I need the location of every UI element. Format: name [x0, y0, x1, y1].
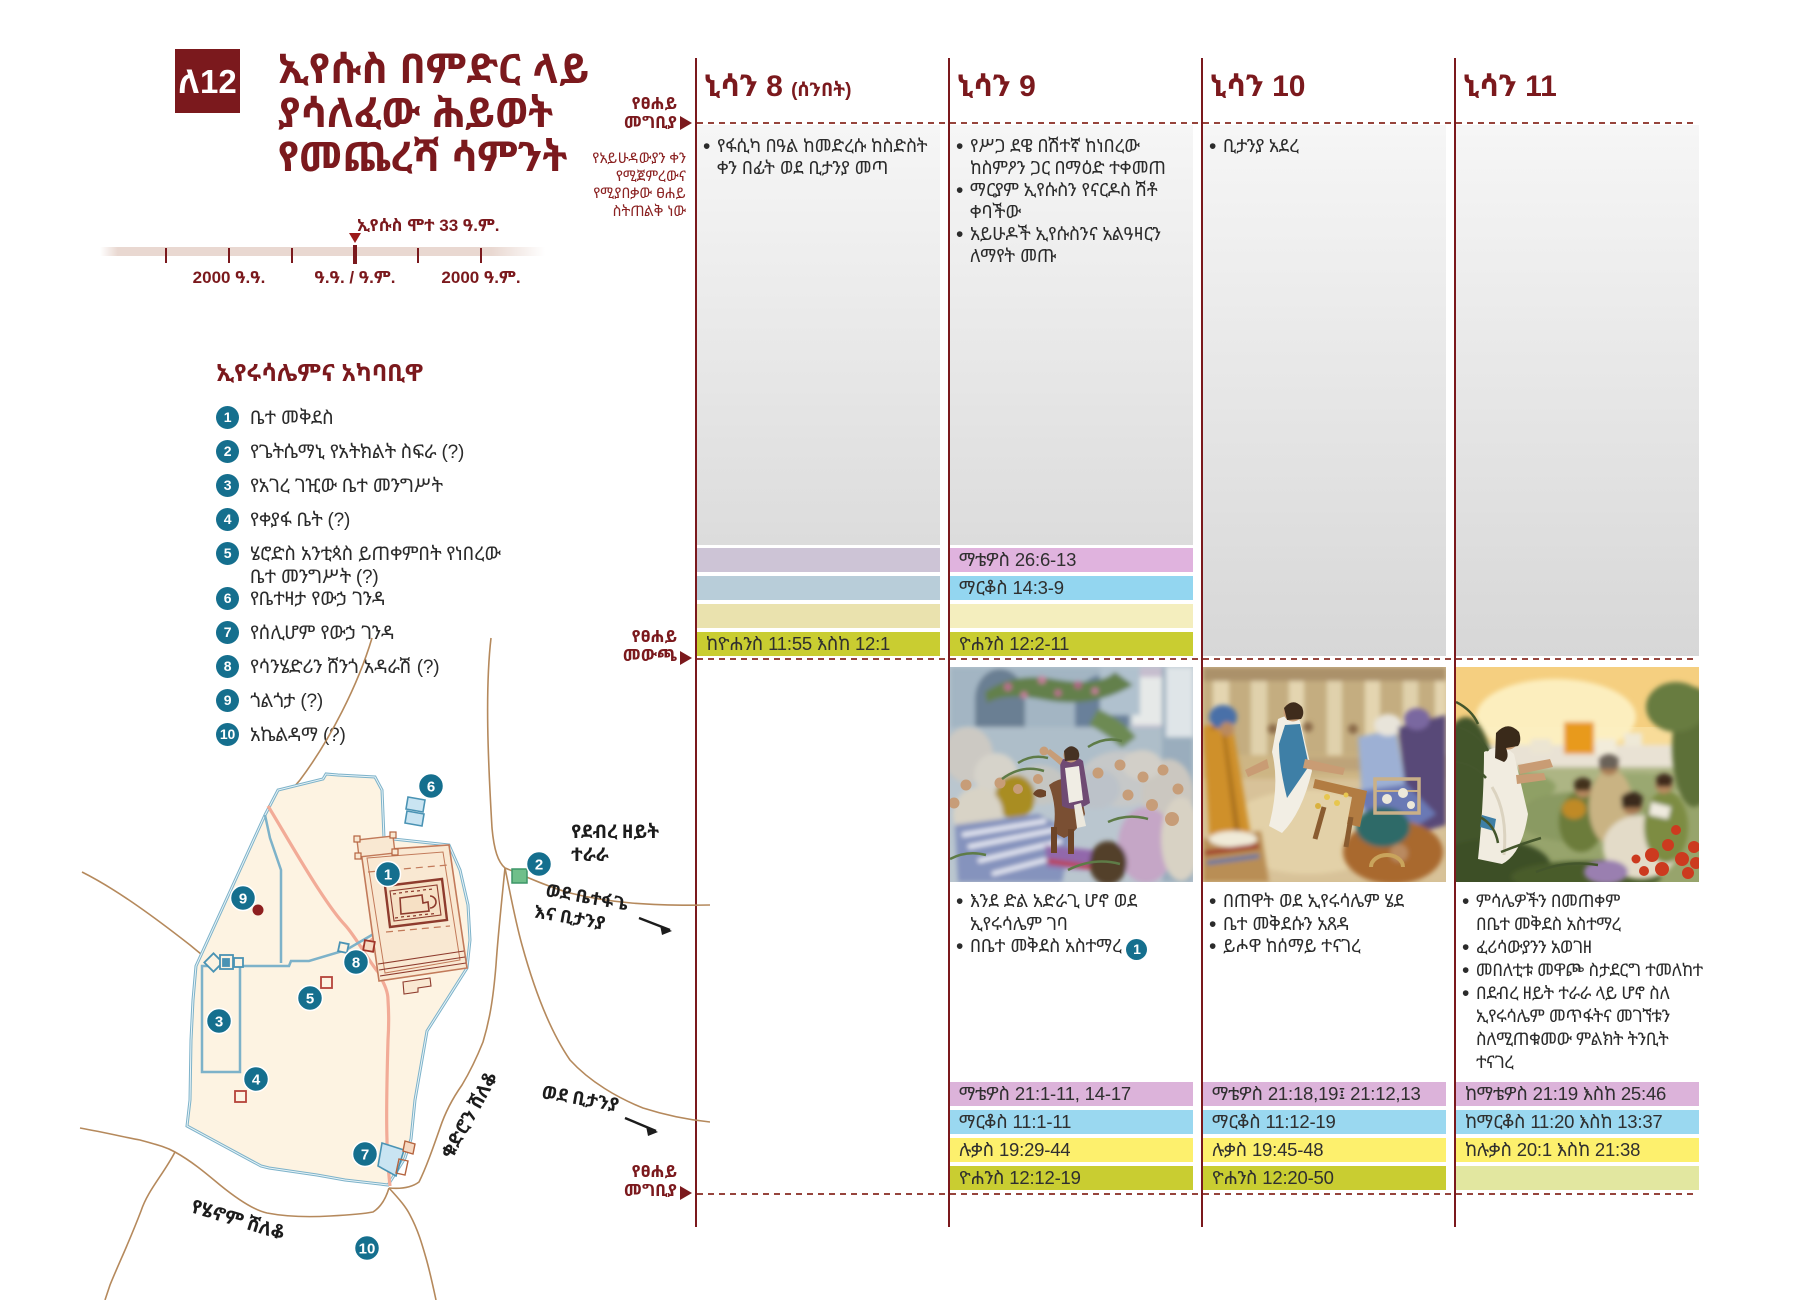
svg-text:3: 3	[215, 1014, 223, 1031]
svg-text:ወደ ቢታንያ: ወደ ቢታንያ	[540, 1079, 621, 1117]
svg-text:1: 1	[384, 867, 392, 884]
svg-text:5: 5	[306, 991, 314, 1008]
svg-text:የሄኖም ሸለቆ: የሄኖም ሸለቆ	[188, 1193, 288, 1246]
svg-text:7: 7	[361, 1147, 369, 1164]
svg-text:8: 8	[352, 955, 360, 972]
svg-text:9: 9	[239, 891, 247, 908]
svg-text:ተራራ: ተራራ	[570, 841, 609, 867]
svg-text:2: 2	[535, 857, 543, 874]
svg-text:6: 6	[427, 779, 435, 796]
svg-text:10: 10	[359, 1241, 376, 1258]
svg-text:4: 4	[252, 1072, 261, 1089]
